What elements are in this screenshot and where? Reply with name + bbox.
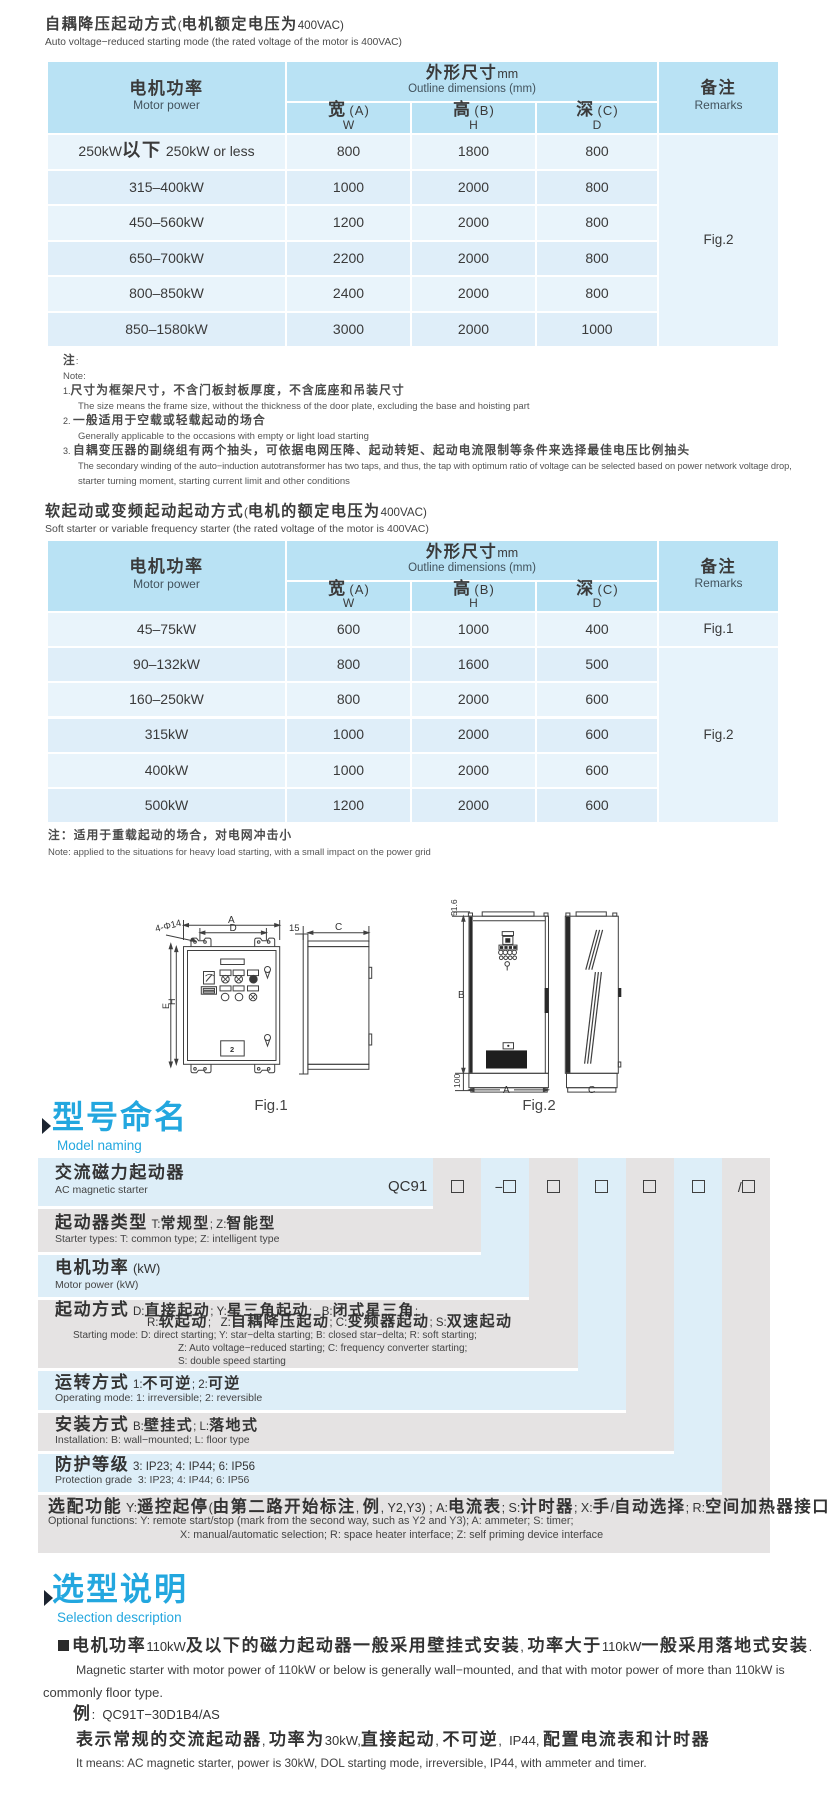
svg-text:C: C bbox=[335, 922, 342, 933]
svg-text:A: A bbox=[503, 1085, 510, 1096]
svg-text:100: 100 bbox=[452, 1074, 462, 1088]
svg-text:H: H bbox=[167, 999, 177, 1006]
svg-text:D: D bbox=[230, 923, 237, 934]
svg-text:4-Φ14: 4-Φ14 bbox=[154, 918, 182, 935]
svg-text:C: C bbox=[588, 1085, 595, 1096]
svg-text:51.6: 51.6 bbox=[449, 899, 459, 916]
svg-text:15: 15 bbox=[289, 923, 300, 934]
svg-text:2: 2 bbox=[230, 1045, 234, 1054]
svg-text:B: B bbox=[458, 990, 465, 1001]
